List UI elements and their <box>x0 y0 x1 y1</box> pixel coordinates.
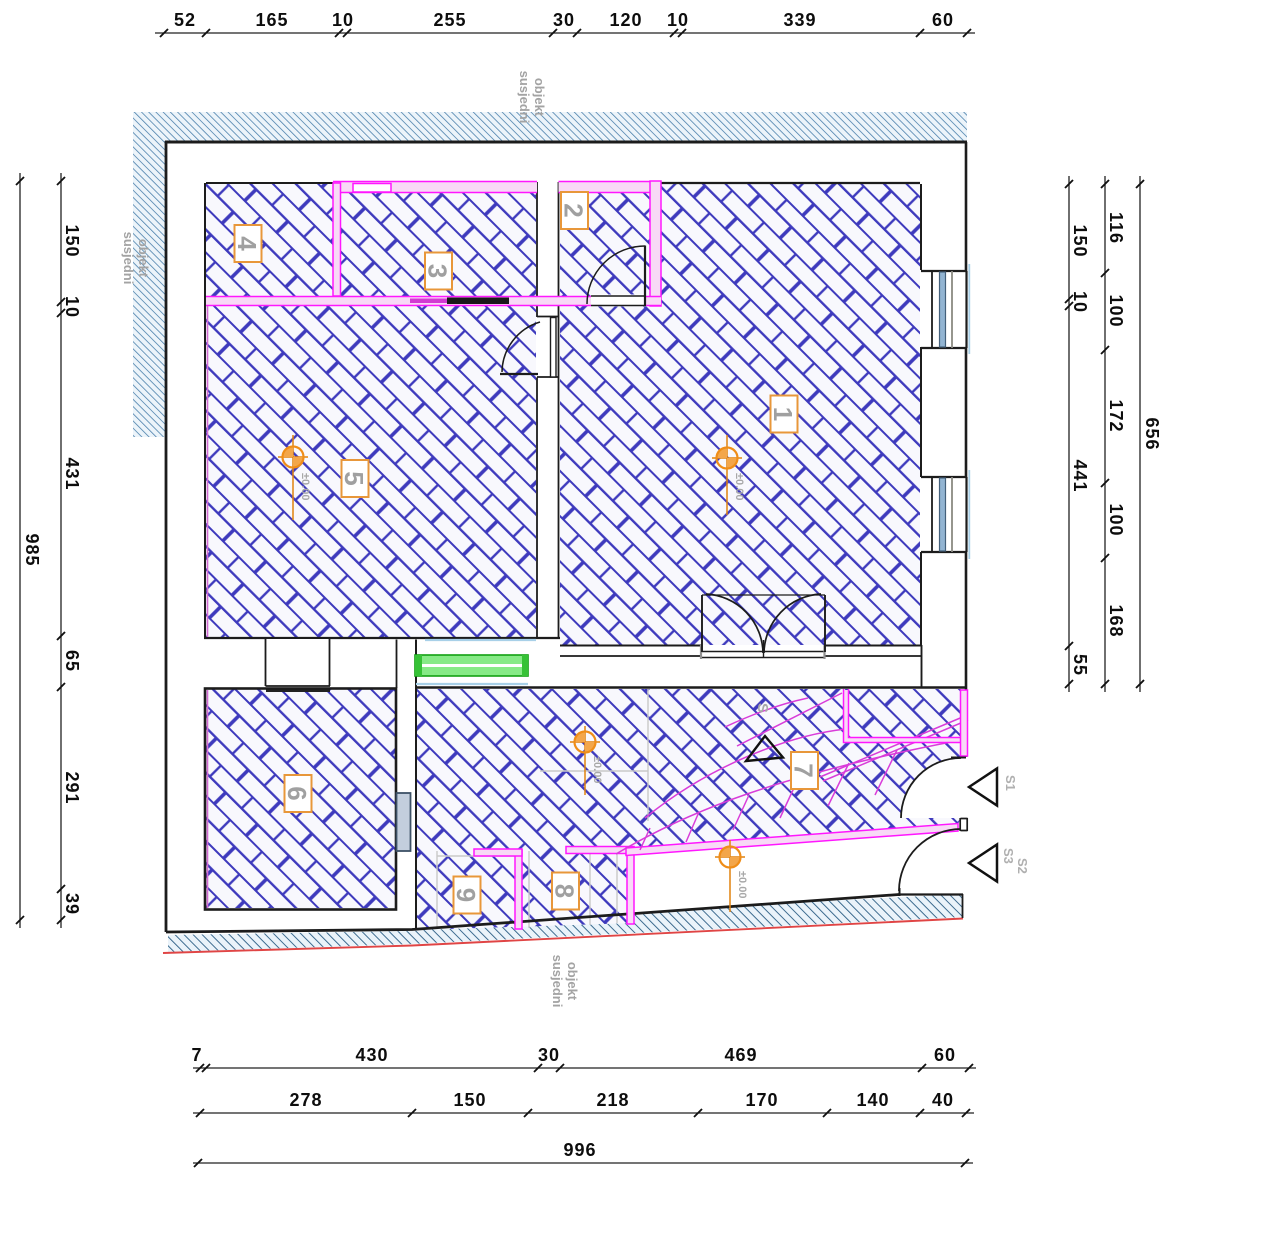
svg-text:2: 2 <box>559 203 589 217</box>
svg-text:116: 116 <box>1106 212 1126 244</box>
svg-text:objekt: objekt <box>136 239 151 278</box>
svg-text:150: 150 <box>1070 224 1090 257</box>
svg-text:3: 3 <box>423 264 453 278</box>
svg-text:140: 140 <box>856 1090 889 1110</box>
svg-text:996: 996 <box>563 1140 596 1160</box>
svg-text:S3: S3 <box>1001 848 1016 864</box>
svg-text:9: 9 <box>451 888 481 902</box>
svg-text:431: 431 <box>62 457 82 490</box>
svg-text:656: 656 <box>1142 417 1162 450</box>
svg-text:172: 172 <box>1106 399 1126 432</box>
svg-text:4: 4 <box>232 236 262 251</box>
svg-text:±0.00: ±0.00 <box>591 756 603 783</box>
svg-text:7: 7 <box>191 1045 202 1065</box>
svg-text:S1: S1 <box>1003 775 1018 791</box>
svg-text:susjedni: susjedni <box>517 71 532 124</box>
svg-text:8: 8 <box>550 884 580 898</box>
svg-text:10: 10 <box>1070 291 1090 313</box>
svg-text:10: 10 <box>332 10 354 30</box>
svg-text:985: 985 <box>22 533 42 566</box>
svg-text:5: 5 <box>339 471 369 485</box>
svg-text:6: 6 <box>282 786 312 800</box>
svg-text:30: 30 <box>553 10 575 30</box>
svg-text:430: 430 <box>355 1045 388 1065</box>
svg-text:150: 150 <box>453 1090 486 1110</box>
svg-text:S: S <box>754 703 771 713</box>
svg-text:65: 65 <box>62 650 82 672</box>
svg-text:218: 218 <box>596 1090 629 1110</box>
svg-text:10: 10 <box>62 296 82 318</box>
svg-text:±0.00: ±0.00 <box>299 473 311 500</box>
svg-text:170: 170 <box>745 1090 778 1110</box>
svg-text:objekt: objekt <box>565 962 580 1001</box>
svg-text:278: 278 <box>289 1090 322 1110</box>
svg-text:10: 10 <box>667 10 689 30</box>
svg-text:60: 60 <box>934 1045 956 1065</box>
svg-text:susjedni: susjedni <box>550 955 565 1008</box>
svg-text:441: 441 <box>1070 459 1090 492</box>
svg-text:168: 168 <box>1106 604 1126 637</box>
svg-text:100: 100 <box>1106 503 1126 536</box>
svg-text:1: 1 <box>768 407 798 421</box>
svg-text:±0.00: ±0.00 <box>733 473 745 500</box>
svg-text:S2: S2 <box>1015 858 1030 874</box>
svg-text:±0.00: ±0.00 <box>736 871 748 898</box>
svg-text:469: 469 <box>724 1045 757 1065</box>
svg-text:255: 255 <box>433 10 466 30</box>
svg-text:339: 339 <box>783 10 816 30</box>
svg-text:55: 55 <box>1070 654 1090 676</box>
svg-text:60: 60 <box>932 10 954 30</box>
svg-text:120: 120 <box>609 10 642 30</box>
svg-text:40: 40 <box>932 1090 954 1110</box>
svg-text:165: 165 <box>255 10 288 30</box>
svg-text:150: 150 <box>62 224 82 257</box>
svg-text:objekt: objekt <box>532 78 547 117</box>
svg-text:7: 7 <box>789 763 819 777</box>
svg-text:100: 100 <box>1106 294 1126 327</box>
svg-text:susjedni: susjedni <box>121 232 136 285</box>
svg-text:52: 52 <box>174 10 196 30</box>
svg-text:30: 30 <box>538 1045 560 1065</box>
svg-text:39: 39 <box>62 893 82 915</box>
svg-text:291: 291 <box>62 771 82 804</box>
